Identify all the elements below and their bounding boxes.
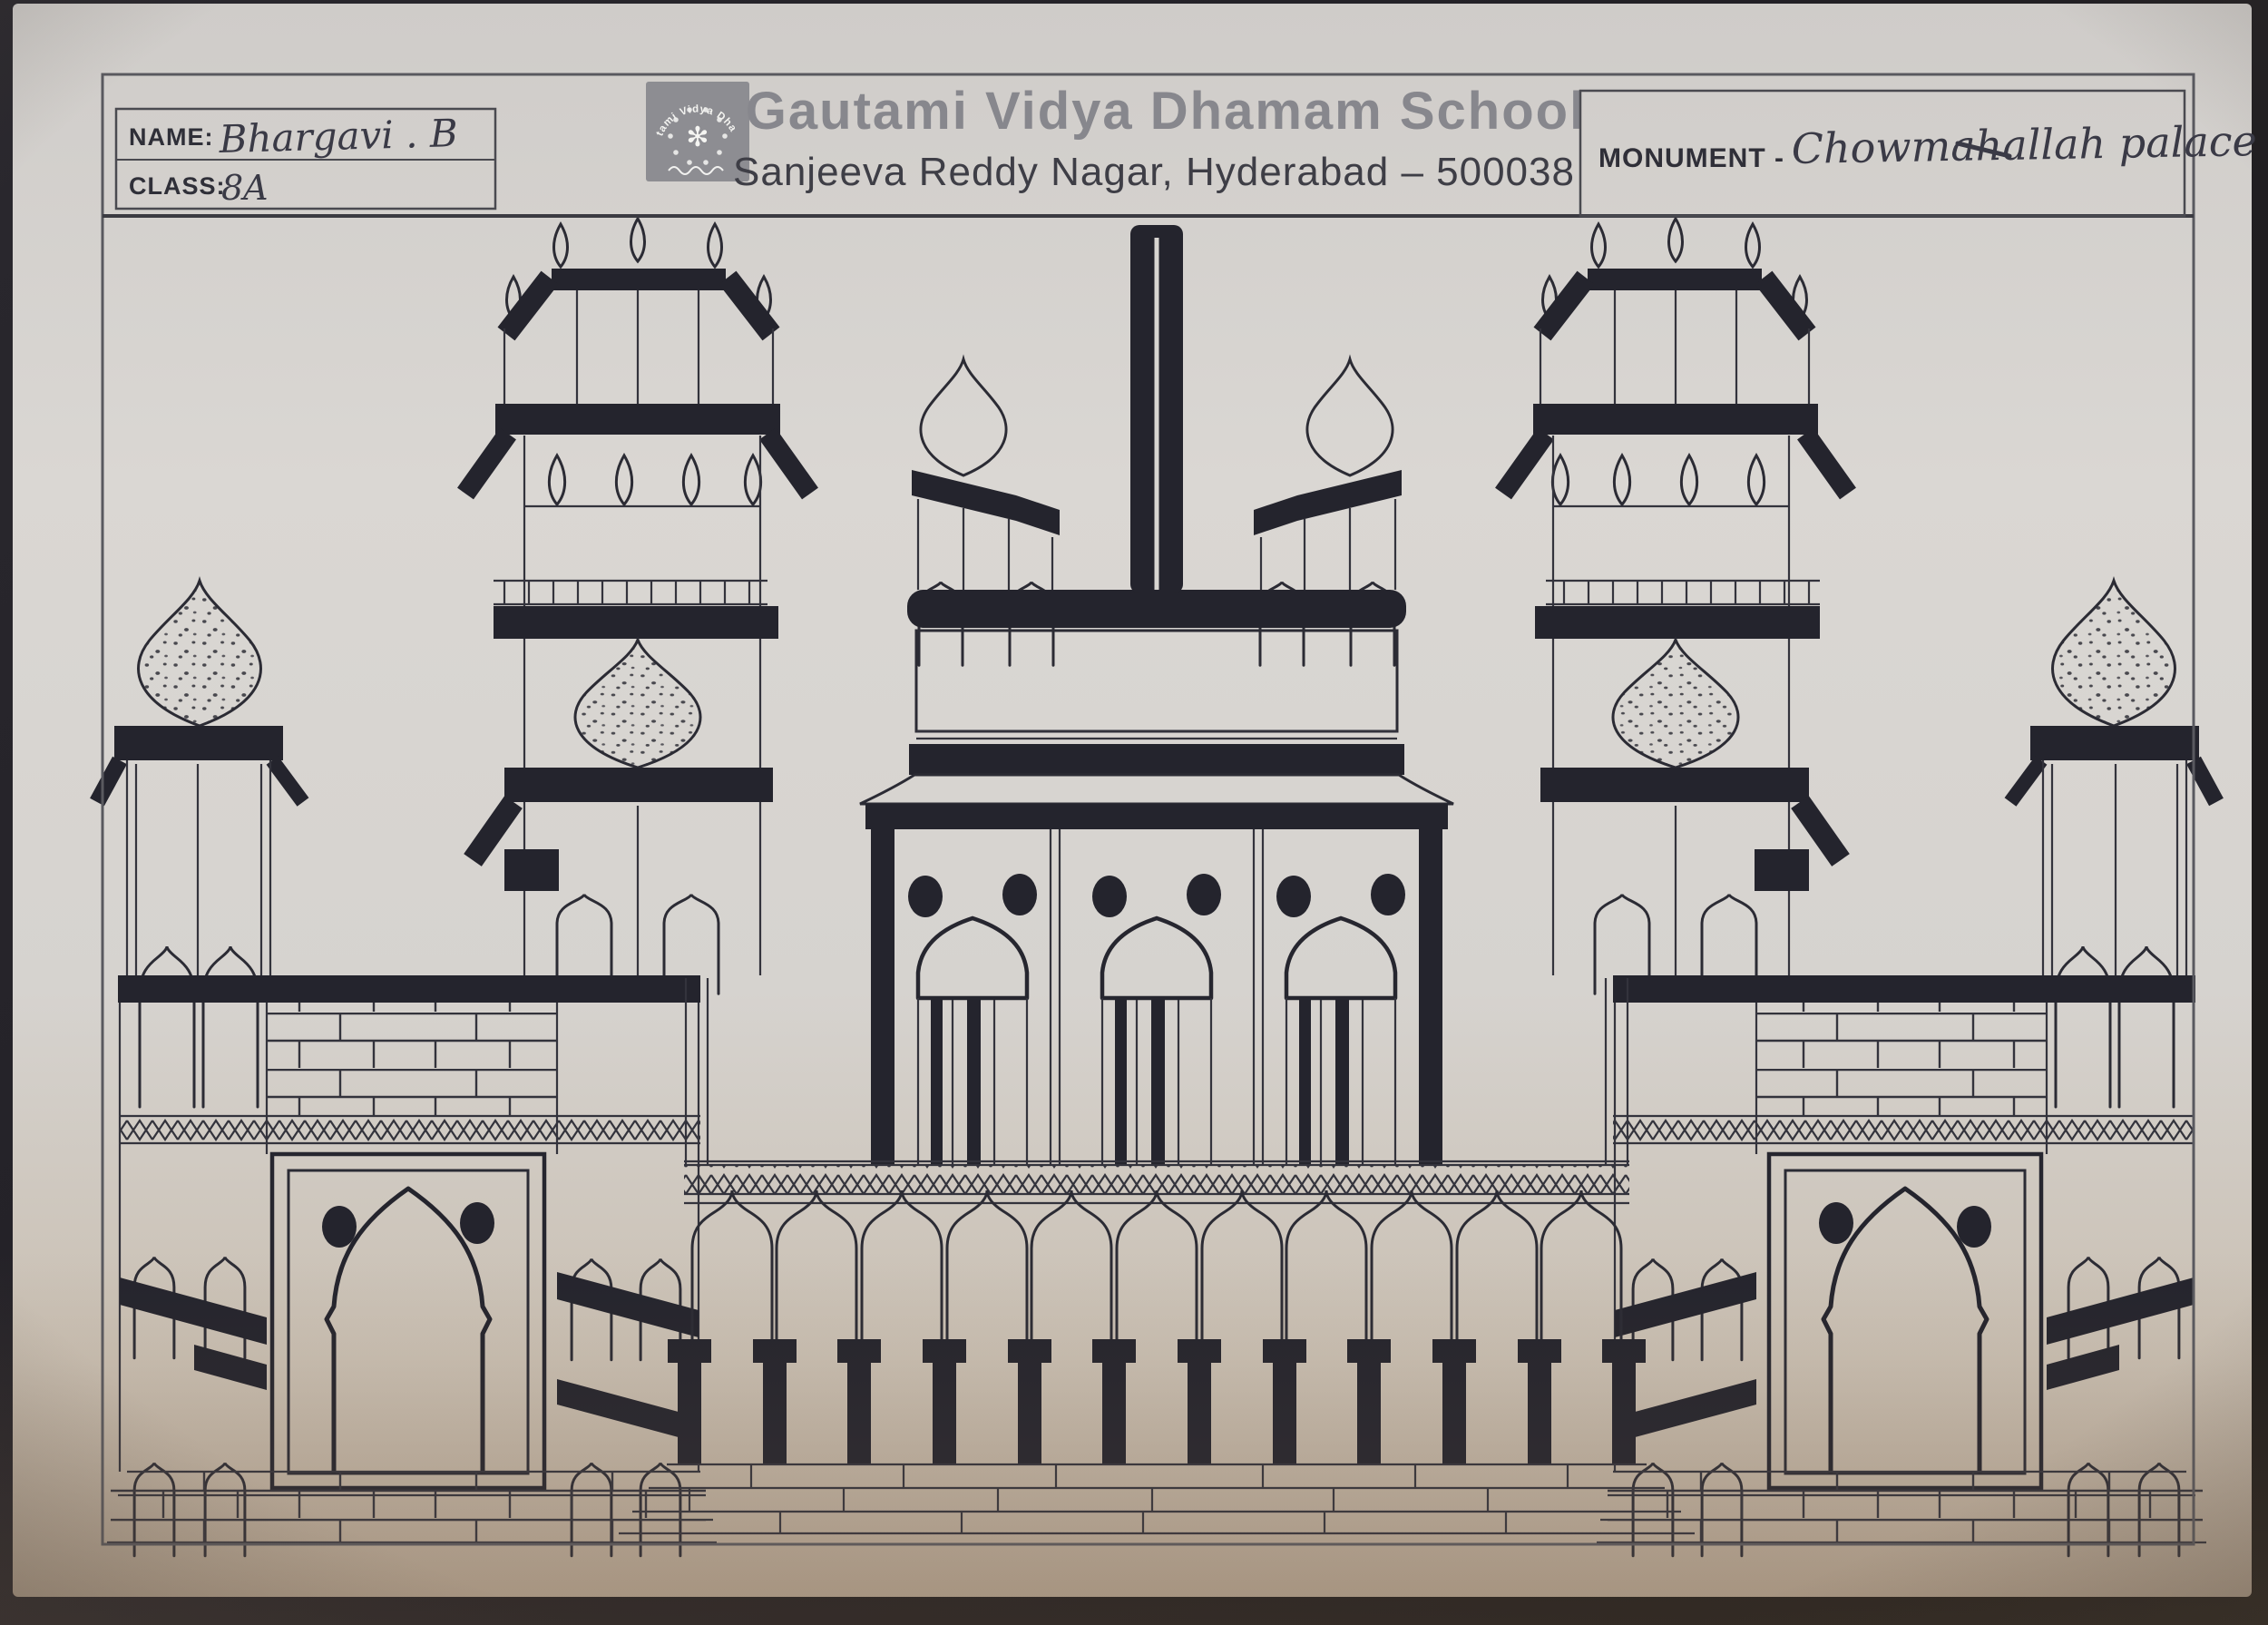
vignette: [0, 0, 2268, 1625]
photo-background: NAME: Bhargavi . B CLASS: 8A Gautami Vid…: [0, 0, 2268, 1625]
